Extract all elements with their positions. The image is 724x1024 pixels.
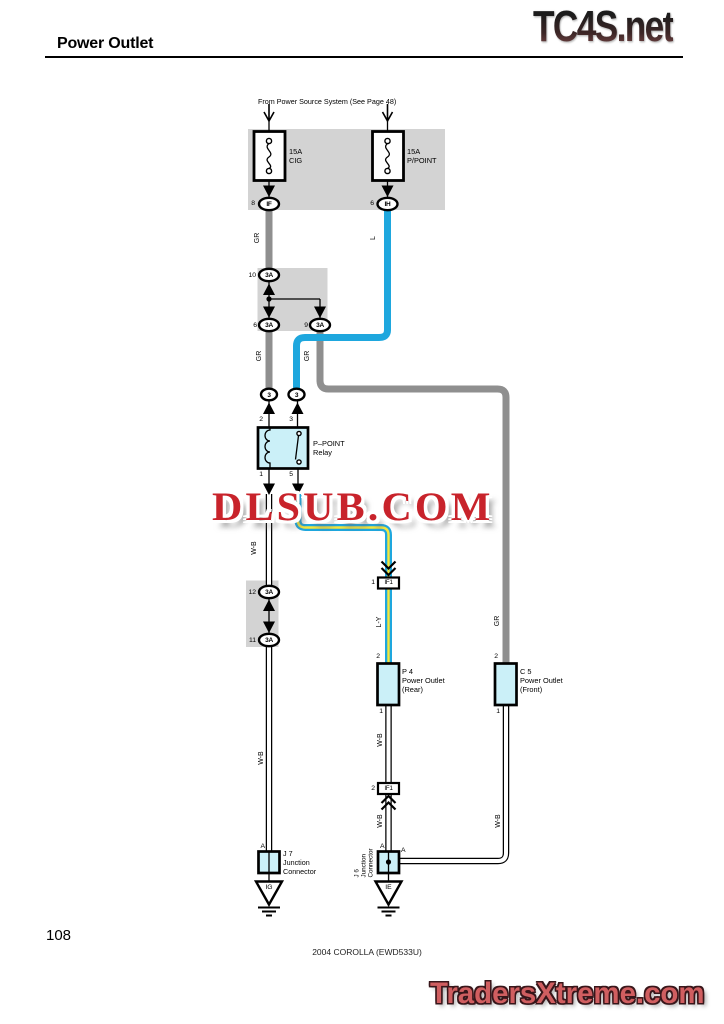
outlet-front-pin-top: 2 [488, 653, 498, 661]
outlet-front-pin-bottom: 1 [490, 708, 500, 716]
pin-11: 11 [242, 637, 256, 645]
if1-lower-name: IF1 [378, 785, 399, 793]
connector-ih: IH [378, 201, 398, 209]
junction-a-top: 3A [259, 272, 279, 280]
pin-12: 12 [242, 589, 256, 597]
wire-label-wb-1: W-B [250, 533, 260, 563]
outlet-rear-label: P 4 Power Outlet (Rear) [402, 667, 445, 695]
wire-label-l: L [369, 223, 379, 253]
relay-type: Relay [313, 448, 345, 457]
j7-pin-a: A [255, 843, 265, 851]
j7-name: Junction [283, 858, 316, 867]
relay-label: P–POINT Relay [313, 439, 345, 458]
ground-ig-label: IG [259, 884, 279, 892]
footer-note: 2004 COROLLA (EWD533U) [262, 947, 472, 957]
outlet-front-sub: (Front) [520, 685, 563, 694]
fuse-cig-label: 15A CIG [289, 147, 302, 166]
title-rule [45, 56, 683, 58]
junction-b-bottom: 3A [259, 637, 279, 645]
outlet-rear-pin-bottom: 1 [373, 708, 383, 716]
wire-label-gr-3: GR [303, 341, 313, 371]
fuse-ppoint-amp: 15A [407, 147, 437, 156]
fuse-ppoint-label: 15A P/POINT [407, 147, 437, 166]
wire-label-ly: L-Y [375, 607, 385, 637]
wire-label-wb-3: W-B [376, 725, 386, 755]
if1-upper-name: IF1 [378, 579, 399, 587]
outlet-rear-pin-top: 2 [370, 653, 380, 661]
if1-upper-pin: 1 [365, 579, 375, 587]
wire-label-gr-4: GR [493, 606, 503, 636]
relay-pin-5: 5 [283, 471, 293, 479]
connector-3-right: 3 [289, 392, 305, 400]
tc4s-watermark: TC4S.net [533, 2, 673, 52]
outlet-rear-code: P 4 [402, 667, 445, 676]
connector-3-left: 3 [261, 392, 277, 400]
j7-label: J 7 Junction Connector [283, 849, 316, 876]
if1-lower-pin: 2 [365, 785, 375, 793]
pin-8: 8 [245, 200, 255, 208]
relay-name: P–POINT [313, 439, 345, 448]
page: Power Outlet TC4S.net From Power Source … [0, 0, 724, 1024]
junction-b-top: 3A [259, 589, 279, 597]
fuse-cig-name: CIG [289, 156, 302, 165]
j6-pin-a: A [375, 843, 385, 851]
dlsub-watermark: DLSUB.COM [212, 483, 494, 530]
j6-label: J 6 Junction Connector [354, 836, 375, 878]
relay-symbol [258, 428, 308, 469]
pin-9: 9 [298, 322, 308, 330]
outlet-front-code: C 5 [520, 667, 563, 676]
j6-name: Junction [361, 836, 368, 878]
j6-box [378, 852, 399, 874]
outlet-front-label: C 5 Power Outlet (Front) [520, 667, 563, 695]
j6-code: J 6 [354, 836, 361, 878]
fuse-cig-symbol [254, 132, 285, 181]
wire-label-wb-4: W-B [376, 806, 386, 836]
j7-code: J 7 [283, 849, 316, 858]
junction-a-left: 3A [259, 322, 279, 330]
wire-label-gr-1: GR [253, 223, 263, 253]
outlet-rear-name: Power Outlet [402, 676, 445, 685]
junction-a-node-dot [266, 296, 271, 301]
ground-ie-label: IE [379, 884, 399, 892]
wire-label-gr-2: GR [255, 341, 265, 371]
page-title: Power Outlet [57, 35, 153, 53]
relay-pin-3: 3 [283, 416, 293, 424]
relay-pin-2: 2 [253, 416, 263, 424]
j6-pin-a-right: A [401, 847, 411, 855]
fuse-ppoint-symbol [373, 132, 404, 181]
wire-label-wb-5: W-B [494, 806, 504, 836]
fuse-cig-amp: 15A [289, 147, 302, 156]
outlet-rear-sub: (Rear) [402, 685, 445, 694]
outlet-rear-box [378, 664, 400, 706]
pin-6: 6 [364, 200, 374, 208]
fuse-ppoint-name: P/POINT [407, 156, 437, 165]
tradersxtreme-watermark: TradersXtreme.com [430, 977, 705, 1011]
junction-a-right: 3A [310, 322, 330, 330]
j6-sub: Connector [368, 836, 375, 878]
source-note: From Power Source System (See Page 48) [258, 97, 396, 106]
wire-label-wb-2: W-B [257, 743, 267, 773]
connector-if: IF [259, 201, 279, 209]
relay-pin-1: 1 [253, 471, 263, 479]
outlet-front-box [495, 664, 517, 706]
pin-6b: 6 [247, 322, 257, 330]
page-number: 108 [46, 927, 71, 944]
outlet-front-name: Power Outlet [520, 676, 563, 685]
j7-box [259, 852, 280, 874]
oval-connectors [259, 198, 398, 646]
pin-10: 10 [243, 272, 256, 280]
j7-sub: Connector [283, 867, 316, 876]
